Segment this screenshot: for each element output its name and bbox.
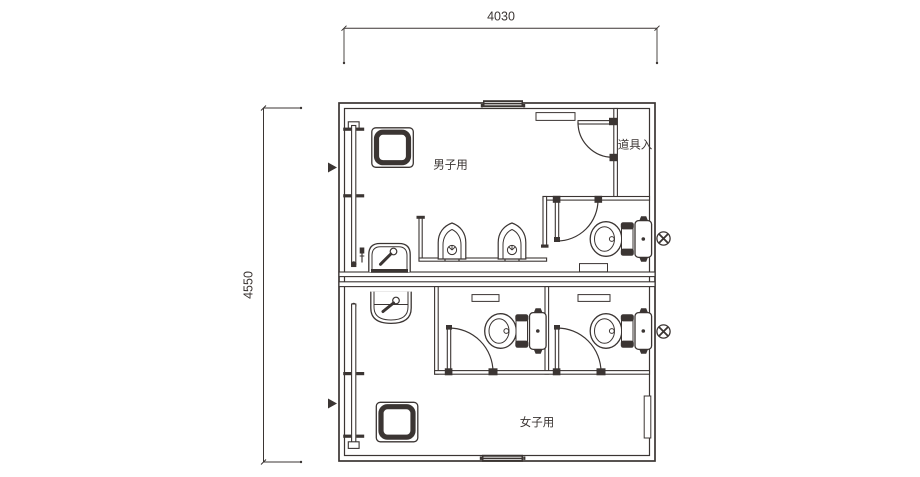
urinal-icon-1 (438, 223, 466, 262)
mens-cleaning-sink-icon (372, 128, 414, 168)
mens-stall-threshold (580, 264, 608, 272)
dimension-height (261, 106, 302, 465)
womens-hand-basin-icon (371, 292, 411, 324)
dimension-width-label: 4030 (487, 10, 515, 24)
dimension-height-label: 4550 (242, 271, 256, 299)
floor-plan-svg: 4030 4550 (0, 0, 920, 477)
urinal-icon-2 (498, 223, 526, 262)
vent-fan-icon-womens (657, 325, 670, 338)
womens-stall1-shelf (472, 295, 499, 302)
womens-stall2-shelf (578, 295, 610, 302)
womens-wall-panel (644, 396, 651, 438)
dimension-width (342, 26, 660, 64)
louver-vent-bottom-icon (480, 455, 526, 462)
mens-shelf (536, 113, 575, 121)
label-tool-storage: 道具入 (618, 138, 653, 152)
womens-entrance-arrow-icon (328, 399, 337, 409)
floor-plan-page: 4030 4550 (0, 0, 920, 477)
label-mens-room: 男子用 (433, 159, 468, 172)
vent-fan-icon-mens (657, 232, 670, 245)
mens-entrance-arrow-icon (328, 163, 337, 173)
louver-vent-top-icon (481, 100, 525, 107)
womens-cleaning-sink-icon (376, 402, 418, 442)
label-womens-room: 女子用 (520, 415, 555, 429)
